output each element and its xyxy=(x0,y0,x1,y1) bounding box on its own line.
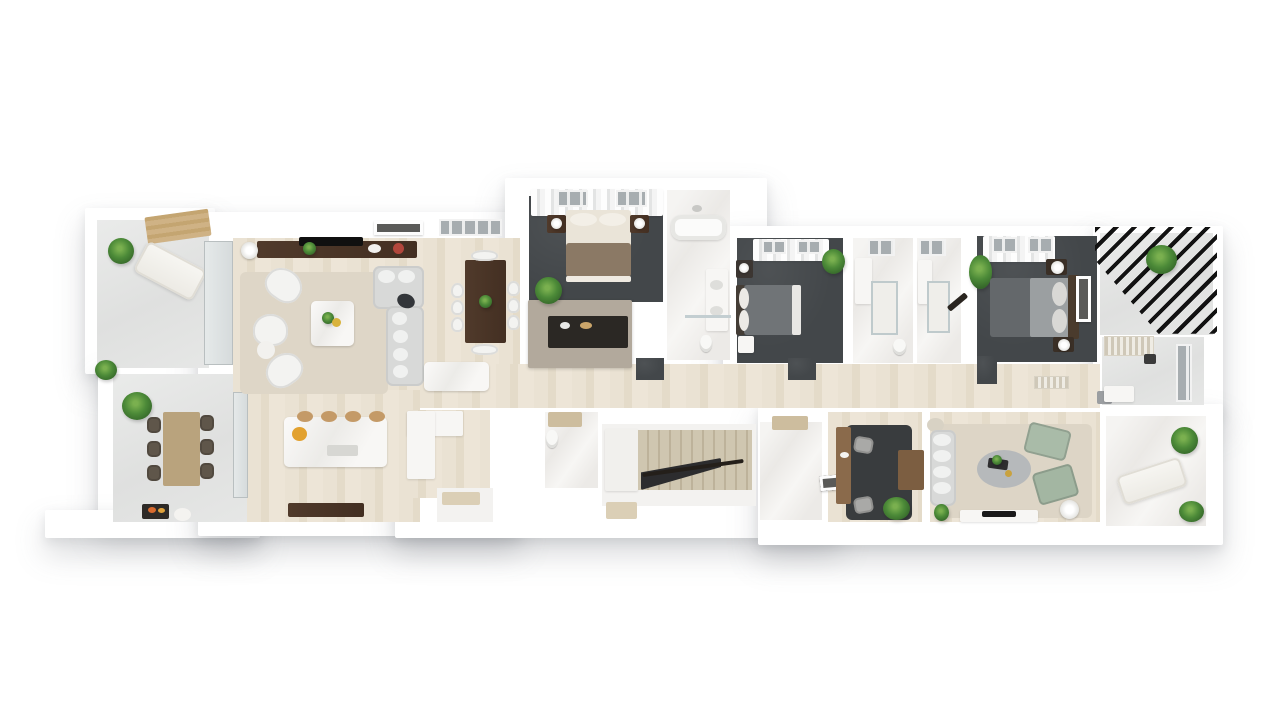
decor xyxy=(1005,470,1012,477)
plant xyxy=(303,242,316,255)
cushion xyxy=(933,466,951,478)
wall-art xyxy=(1076,276,1091,322)
glass-wall xyxy=(204,241,233,365)
floor-plan xyxy=(0,0,1280,720)
table-lamp xyxy=(739,263,749,273)
outdoor-chair xyxy=(147,417,161,433)
floor-vent xyxy=(1034,376,1069,389)
dining-chair xyxy=(507,298,520,313)
stair-landing xyxy=(605,429,638,491)
cushion xyxy=(933,450,951,462)
bar-stool xyxy=(297,411,313,422)
table-lamp xyxy=(634,218,645,229)
bedroom2-door-carpet xyxy=(788,358,816,380)
dining-chair xyxy=(451,283,464,298)
window-pane xyxy=(919,239,946,256)
bbq-food xyxy=(148,507,156,513)
pillow xyxy=(739,310,749,331)
mudroom-counter xyxy=(772,416,808,430)
floor-lamp xyxy=(241,242,258,259)
bedroom3-door-carpet xyxy=(977,356,997,384)
outdoor-chair xyxy=(200,463,214,479)
bedroom1-door-carpet xyxy=(636,358,664,380)
pillow xyxy=(570,213,597,226)
dining-chair xyxy=(471,250,498,261)
sink xyxy=(710,280,723,290)
cushion xyxy=(393,365,408,378)
bar-stool xyxy=(345,411,361,422)
hallway-floor xyxy=(420,364,1100,408)
shower-head xyxy=(692,205,702,212)
bed-foot xyxy=(566,276,631,282)
plant xyxy=(1171,427,1198,454)
appliance xyxy=(560,322,570,329)
desk-chair xyxy=(853,435,874,454)
cushion xyxy=(398,270,415,283)
cushion xyxy=(393,330,408,343)
sideboard xyxy=(288,503,364,517)
desk xyxy=(836,427,851,504)
window-pane xyxy=(797,240,821,254)
shower xyxy=(871,281,898,335)
outdoor-dining-table xyxy=(163,412,200,486)
pillow xyxy=(1052,309,1067,333)
bbq-food xyxy=(158,508,165,513)
plant xyxy=(108,238,134,264)
window-pane xyxy=(762,240,786,254)
bbq-grill xyxy=(142,504,169,519)
bar-stool xyxy=(321,411,337,422)
toilet xyxy=(546,430,558,448)
kitchen-island xyxy=(284,417,387,467)
bath-vanity xyxy=(706,269,728,331)
outdoor-chair xyxy=(200,415,214,431)
outdoor-chair xyxy=(147,441,161,457)
bed-duvet xyxy=(744,285,796,335)
window-pane xyxy=(1176,344,1192,402)
window-pane xyxy=(557,190,588,207)
toilet xyxy=(893,339,906,355)
glass-screen xyxy=(685,315,731,318)
decor-bowl xyxy=(393,243,404,254)
office-cabinet xyxy=(898,450,924,490)
pantry-counter xyxy=(407,411,435,479)
plant xyxy=(883,497,910,520)
window-pane xyxy=(868,239,895,256)
kitchen-counter xyxy=(424,362,489,391)
appliance xyxy=(580,322,592,329)
wall-art xyxy=(374,221,423,235)
pillow xyxy=(599,213,626,226)
plant xyxy=(969,255,992,289)
bathtub xyxy=(671,215,726,240)
window-grid xyxy=(439,219,502,236)
island-sink xyxy=(327,445,358,456)
bath-vanity xyxy=(855,258,872,304)
plant-decor xyxy=(992,455,1002,465)
accent-chair xyxy=(253,314,288,346)
dining-chair xyxy=(471,344,498,355)
dining-chair xyxy=(451,317,464,332)
cushion xyxy=(392,312,407,325)
dining-chair xyxy=(451,300,464,315)
plant xyxy=(1146,245,1177,274)
pillow xyxy=(739,288,749,309)
bench xyxy=(738,336,754,353)
plant xyxy=(122,392,152,420)
plant xyxy=(934,504,949,521)
outdoor-chair xyxy=(200,439,214,455)
decor-dish xyxy=(368,244,381,253)
skylight xyxy=(1104,336,1154,356)
closet-counter xyxy=(548,316,628,348)
decor xyxy=(332,318,341,327)
utility-sink xyxy=(1144,354,1156,364)
mudroom-floor xyxy=(760,422,822,520)
plant xyxy=(822,249,845,274)
side-table xyxy=(174,508,191,521)
plant xyxy=(1179,501,1204,522)
cushion xyxy=(933,482,951,494)
powder-vanity xyxy=(548,412,582,427)
utility-cabinet xyxy=(1104,386,1134,402)
bed-blanket xyxy=(566,243,631,277)
window-pane xyxy=(992,237,1017,253)
cushion xyxy=(378,270,395,283)
table-lamp xyxy=(1058,339,1070,351)
under-stair-closet xyxy=(606,502,637,519)
plant xyxy=(95,360,117,380)
dining-chair xyxy=(507,281,520,296)
bed-sheet-fold xyxy=(792,285,801,335)
plant xyxy=(535,277,562,304)
cushion xyxy=(393,348,408,361)
desk-papers xyxy=(840,452,849,458)
bar-stool xyxy=(369,411,385,422)
centerpiece xyxy=(479,295,492,308)
table-lamp xyxy=(1051,261,1064,274)
entry-step xyxy=(442,492,480,505)
table-lamp xyxy=(551,218,562,229)
outdoor-chair xyxy=(147,465,161,481)
fruit-bowl xyxy=(292,427,307,441)
side-table xyxy=(257,341,275,359)
window-pane xyxy=(616,190,647,207)
cushion xyxy=(933,434,951,446)
toilet xyxy=(700,335,712,352)
glass-door xyxy=(233,392,248,498)
pillow xyxy=(1052,282,1067,306)
tv xyxy=(982,511,1016,517)
floor-lamp xyxy=(1060,500,1079,519)
window-pane xyxy=(1028,237,1053,253)
dining-chair xyxy=(507,315,520,330)
